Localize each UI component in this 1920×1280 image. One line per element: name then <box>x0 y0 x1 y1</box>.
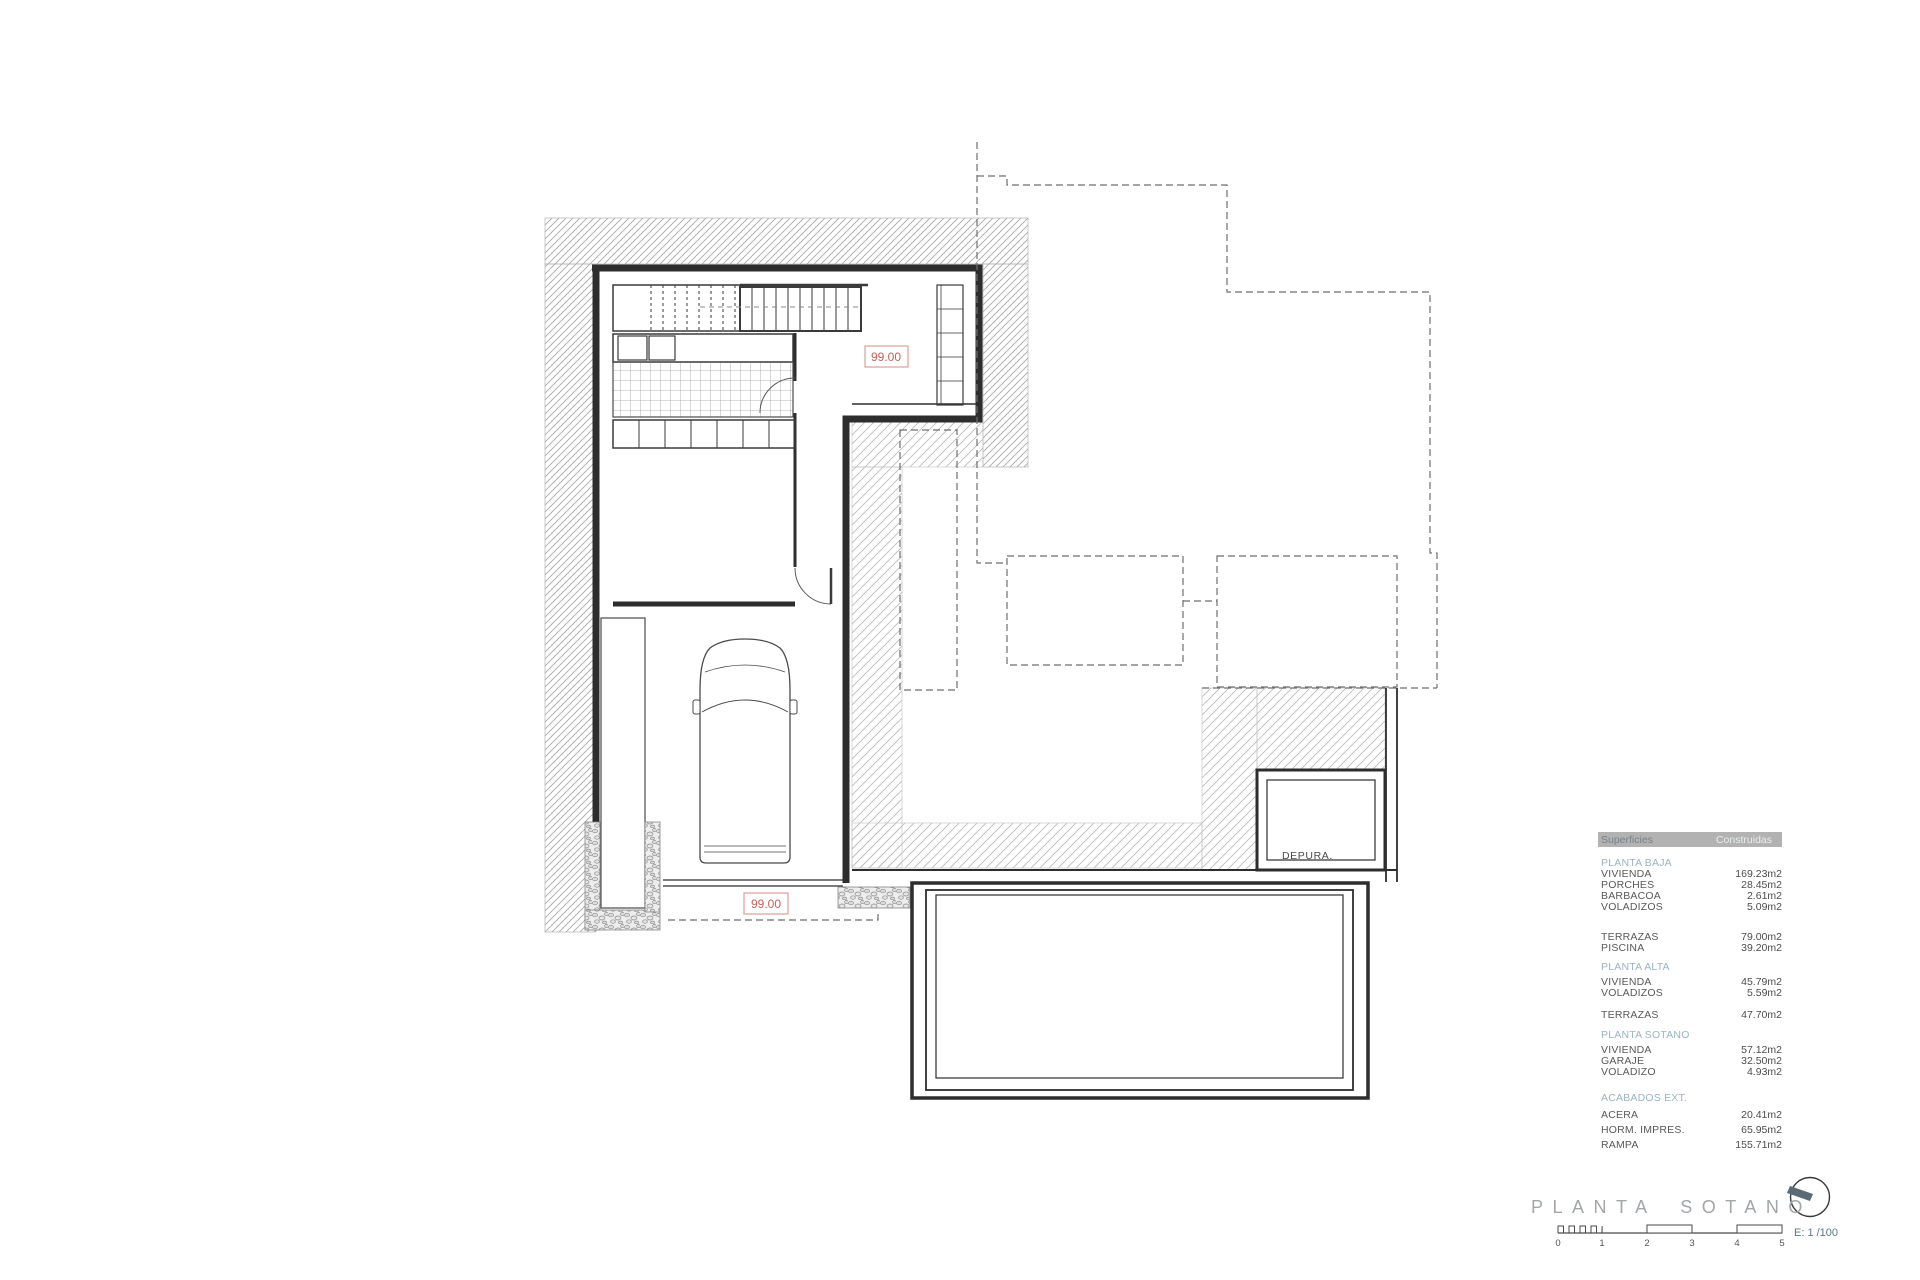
patio-hatch-band <box>852 467 902 868</box>
wardrobe-row <box>613 420 795 448</box>
scale-tick-3: 3 <box>1689 1238 1694 1249</box>
pool-outer-wall <box>912 883 1368 1098</box>
table-row-label: HORM. IMPRES. <box>1601 1125 1685 1136</box>
pool-water-edge <box>936 895 1343 1078</box>
drawing-sheet: DEPURA. 99.00 99.00 0 1 <box>0 0 1920 1280</box>
stone-wall-garage-side <box>838 887 910 908</box>
table-row-value: 5.59m2 <box>1747 988 1782 999</box>
depura-hatch-top <box>1257 688 1385 770</box>
upper-floor-dashed-outline <box>977 176 1437 688</box>
earth-hatch-top-band <box>545 218 1028 264</box>
earth-hatch-right-band <box>983 264 1028 467</box>
car-windshield <box>702 700 788 712</box>
area-table-header: Superficies Construidas <box>1598 832 1782 847</box>
table-section-row: PLANTA ALTA <box>1601 962 1782 973</box>
scale-tick-4: 4 <box>1734 1238 1739 1249</box>
deck-hatch-strip <box>852 823 1202 868</box>
table-row-value: 155.71m2 <box>1735 1140 1782 1151</box>
table-row: ACERA20.41m2 <box>1601 1110 1782 1121</box>
table-row: PISCINA39.20m2 <box>1601 943 1782 954</box>
table-row-value: 5.09m2 <box>1747 902 1782 913</box>
scale-tick-labels: 0 1 2 3 4 5 <box>1555 1238 1784 1249</box>
car-hood-line <box>705 665 785 672</box>
car-mirror-right <box>790 700 797 714</box>
corridor-door-arc <box>795 568 831 604</box>
table-header-col2: Construidas <box>1716 834 1772 846</box>
scale-ratio-label: E: 1 /100 <box>1794 1227 1838 1239</box>
garage-door-opening <box>663 880 843 886</box>
table-row-value: 47.70m2 <box>1741 1010 1782 1021</box>
stairs-lower-run <box>700 285 868 331</box>
table-section-row: PLANTA SOTANO <box>1601 1030 1782 1041</box>
table-row-value: 4.93m2 <box>1747 1067 1782 1078</box>
stairs-upper-run <box>613 285 740 331</box>
area-table-rows: PLANTA BAJAVIVIENDA169.23m2PORCHES28.45m… <box>1598 858 1782 1151</box>
table-row: VOLADIZO4.93m2 <box>1601 1067 1782 1078</box>
level-value-upper: 99.00 <box>871 350 901 364</box>
car-body <box>700 639 790 863</box>
table-row-label: RAMPA <box>1601 1140 1639 1151</box>
scale-tick-1: 1 <box>1599 1238 1604 1249</box>
scale-bar <box>1558 1225 1782 1233</box>
car-rear-lines <box>704 846 786 852</box>
ramp-strip <box>601 618 645 908</box>
cabinet-row <box>613 334 793 362</box>
scale-tick-2: 2 <box>1644 1238 1649 1249</box>
table-row-label: VOLADIZOS <box>1601 988 1663 999</box>
scale-tick-0: 0 <box>1555 1238 1560 1249</box>
pool-coping <box>926 890 1353 1090</box>
table-row-label: PLANTA ALTA <box>1601 962 1670 973</box>
garage-car <box>693 639 797 863</box>
table-row: VOLADIZOS5.59m2 <box>1601 988 1782 999</box>
area-table: Superficies Construidas PLANTA BAJAVIVIE… <box>1598 832 1782 1151</box>
table-row-label: PISCINA <box>1601 943 1644 954</box>
table-row: TERRAZAS47.70m2 <box>1601 1010 1782 1021</box>
scale-box-1 <box>1647 1225 1692 1233</box>
level-label-lower: 99.00 <box>744 893 788 914</box>
stair-treads <box>752 287 848 331</box>
table-row: HORM. IMPRES.65.95m2 <box>1601 1125 1782 1136</box>
dashed-rect-center <box>1007 556 1183 665</box>
table-row-label: TERRAZAS <box>1601 1010 1659 1021</box>
dashed-rect-porch <box>900 430 957 690</box>
table-row-value: 39.20m2 <box>1741 943 1782 954</box>
level-label-upper: 99.00 <box>865 346 908 367</box>
scale-tick-5: 5 <box>1779 1238 1784 1249</box>
table-row: VOLADIZOS5.09m2 <box>1601 902 1782 913</box>
depura-hatch-left <box>1202 688 1257 870</box>
dashed-rect-right <box>1217 556 1397 687</box>
patio-hatch-top <box>852 420 983 467</box>
table-row-value: 65.95m2 <box>1741 1125 1782 1136</box>
level-value-lower: 99.00 <box>751 897 781 911</box>
sheet-title: PLANTA SOTANO <box>1531 1197 1812 1218</box>
car-mirror-left <box>693 700 700 714</box>
tiled-floor <box>613 362 793 417</box>
pool <box>912 883 1368 1098</box>
table-row-label: PLANTA SOTANO <box>1601 1030 1690 1041</box>
table-row-label: VOLADIZO <box>1601 1067 1656 1078</box>
east-boundary-wall <box>1386 688 1397 882</box>
table-row: RAMPA155.71m2 <box>1601 1140 1782 1151</box>
table-section-row: ACABADOS EXT. <box>1601 1093 1782 1104</box>
table-row-label: VOLADIZOS <box>1601 902 1663 913</box>
stair-treads-dashed <box>651 285 735 331</box>
depura-label: DEPURA. <box>1282 850 1333 862</box>
table-row-value: 20.41m2 <box>1741 1110 1782 1121</box>
table-header-col1: Superficies <box>1601 834 1653 846</box>
shelf-strip <box>937 285 963 405</box>
scale-comb <box>1558 1226 1602 1233</box>
table-row-label: ACERA <box>1601 1110 1638 1121</box>
scale-box-2 <box>1737 1225 1782 1233</box>
table-row-label: ACABADOS EXT. <box>1601 1093 1687 1104</box>
